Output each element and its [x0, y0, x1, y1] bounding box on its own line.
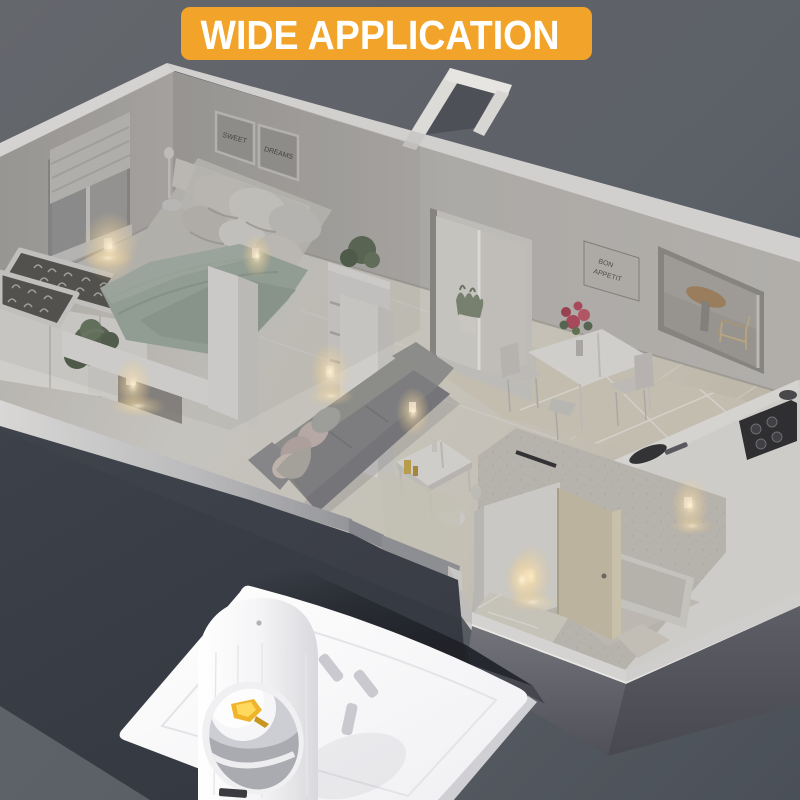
- svg-text:WIDE APPLICATION: WIDE APPLICATION: [201, 12, 560, 58]
